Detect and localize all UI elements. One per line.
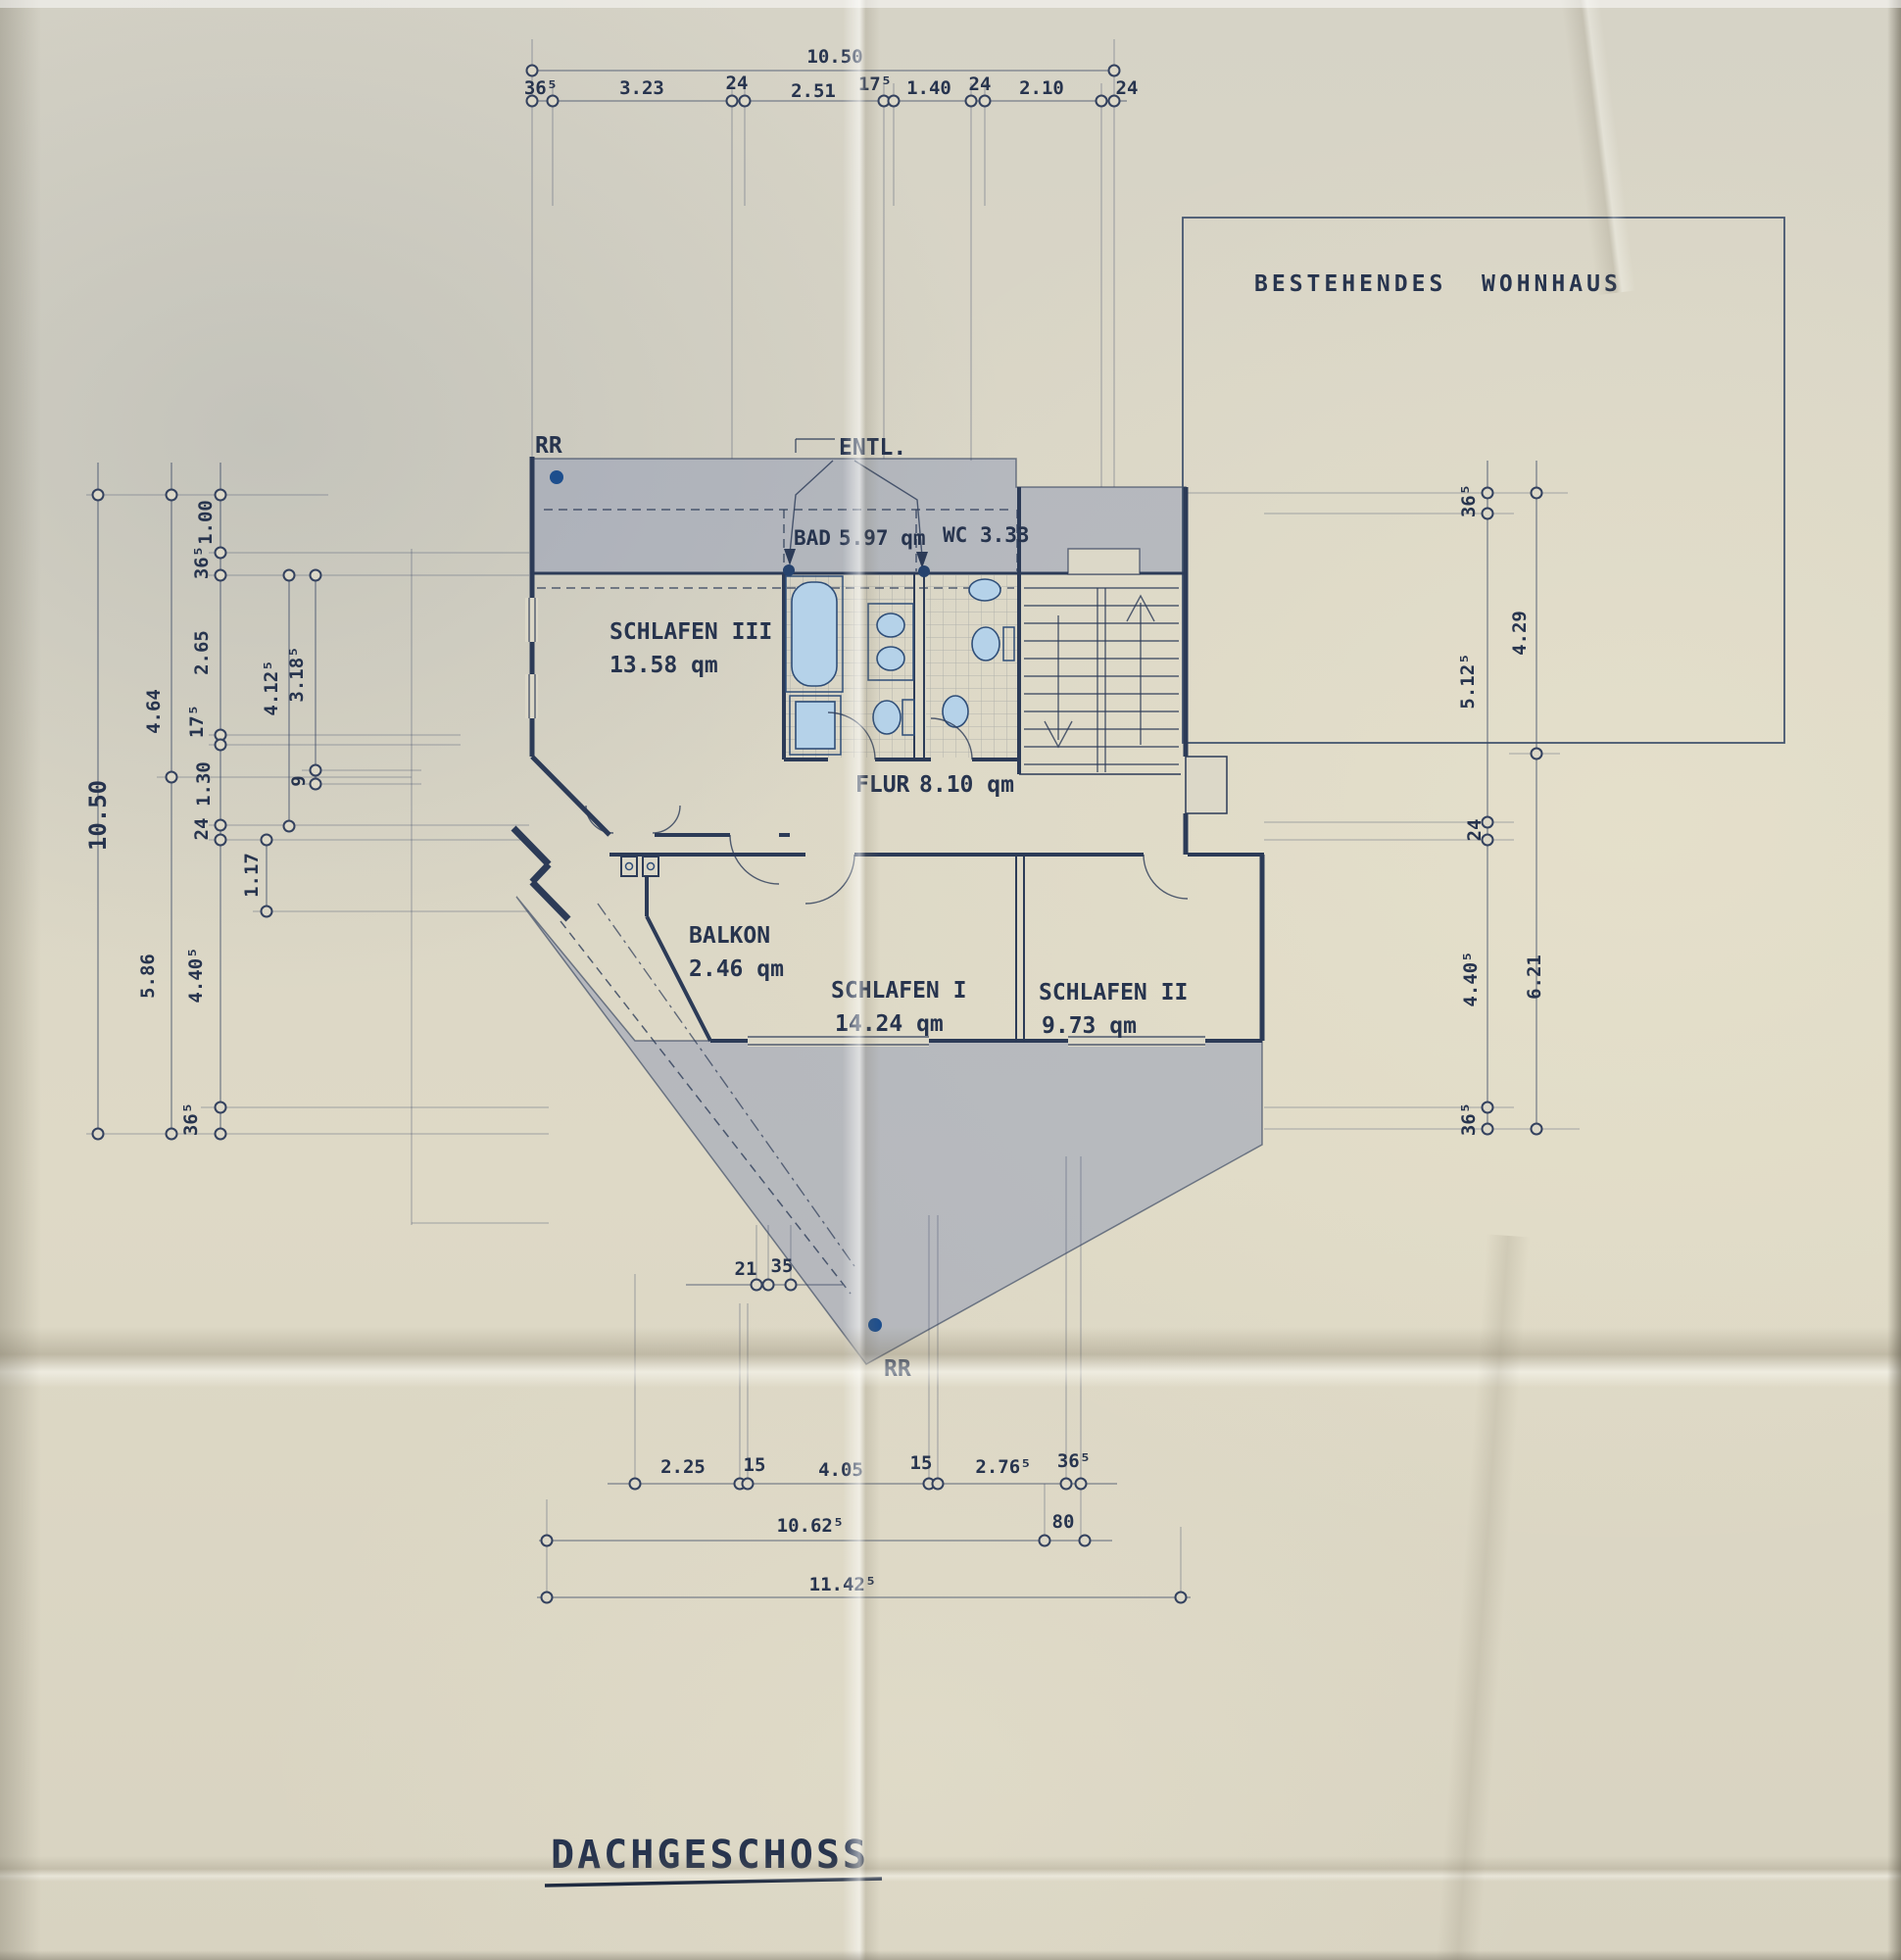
toilet-icon [873, 701, 901, 734]
dim: 36⁵ [524, 77, 558, 99]
washbasin-icon [877, 613, 904, 637]
staircase [1024, 549, 1179, 772]
dim: 24 [191, 818, 213, 841]
dim: 36⁵ [191, 546, 213, 579]
dim: 36⁵ [1458, 1102, 1480, 1136]
room-label-balkon: BALKON [689, 923, 770, 949]
room-label-flur: FLUR [855, 772, 910, 798]
dim: 2.10 [1019, 77, 1064, 99]
dim: 1.40 [906, 77, 951, 99]
dim: 3.18⁵ [286, 646, 308, 702]
dim: 36⁵ [1458, 484, 1480, 517]
room-area-bad: 5.97 qm [839, 526, 926, 550]
room-label-schlafen2: SCHLAFEN II [1039, 980, 1188, 1005]
dim: 4.05 [818, 1459, 863, 1481]
dim-top-total: 10.50 [806, 46, 862, 68]
rainpipe-dot-bottom [868, 1318, 882, 1332]
dim: 4.40⁵ [1460, 951, 1482, 1006]
room-area-schlafen3: 13.58 qm [609, 653, 718, 678]
dim: 35 [771, 1255, 794, 1277]
dim: 4.40⁵ [185, 947, 207, 1003]
dim: 21 [735, 1258, 757, 1280]
balcony-door-post [621, 857, 637, 876]
dim: 2.25 [660, 1456, 706, 1478]
rainpipe-label-bottom: RR [884, 1356, 911, 1382]
room-area-schlafen1: 14.24 qm [835, 1011, 944, 1037]
dim: 24 [726, 73, 749, 94]
vent-label: ENTL. [839, 435, 906, 461]
dim: 4.64 [143, 689, 165, 734]
dim: 6.21 [1524, 955, 1545, 1000]
dim: 15 [744, 1454, 766, 1476]
balcony-door-post [643, 857, 658, 876]
dim: 1.00 [195, 500, 217, 545]
floorplan-drawing: SCHLAFEN III 13.58 qm BAD 5.97 qm WC 3.3… [0, 0, 1901, 1960]
dim: 9 [288, 775, 310, 786]
dim-bottom-total: 11.42⁵ [809, 1574, 877, 1595]
shower [796, 702, 835, 749]
dim: 4.29 [1509, 611, 1531, 656]
dim: 4.12⁵ [261, 660, 282, 715]
room-label-schlafen3: SCHLAFEN III [609, 619, 772, 645]
room-label-bad: BAD [794, 526, 831, 550]
dim: 24 [1464, 819, 1486, 842]
drawing-title: DACHGESCHOSS [551, 1833, 869, 1878]
dim: 1.30 [193, 761, 215, 807]
dim: 80 [1052, 1511, 1075, 1533]
rainpipe-label-top: RR [535, 433, 562, 459]
dim: 17⁵ [858, 73, 892, 95]
room-area-wc: 3.33 [980, 523, 1030, 547]
dim: 24 [969, 73, 992, 95]
vent-pipe-dot [918, 565, 930, 577]
stair-down-arrow [1045, 615, 1072, 747]
dim: 24 [1116, 77, 1139, 99]
stair-up-arrow [1127, 596, 1154, 745]
washbasin-icon [877, 647, 904, 670]
dim: 5.86 [137, 954, 159, 999]
room-label-wc: WC [943, 523, 967, 547]
dim: 2.51 [791, 80, 836, 102]
rainpipe-dot-top [550, 470, 563, 484]
dim: 3.23 [619, 77, 664, 99]
room-label-schlafen1: SCHLAFEN I [831, 978, 966, 1004]
dim: 5.12⁵ [1457, 653, 1479, 709]
dim: 2.65 [191, 630, 213, 675]
wc-sink-icon [969, 579, 1000, 601]
dim: 2.76⁵ [975, 1456, 1031, 1478]
dim-left-total: 10.50 [84, 780, 112, 851]
bathroom [786, 575, 1017, 758]
vent-pipe-dot [783, 564, 795, 576]
bathtub [792, 582, 837, 686]
dim: 17⁵ [186, 705, 208, 738]
balcony [513, 828, 658, 919]
dim: 15 [910, 1452, 933, 1474]
dim: 36⁵ [180, 1102, 202, 1136]
bidet-icon [943, 696, 968, 727]
dim: 36⁵ [1057, 1450, 1091, 1472]
blueprint-paper: SCHLAFEN III 13.58 qm BAD 5.97 qm WC 3.3… [0, 0, 1901, 1960]
room-area-schlafen2: 9.73 qm [1042, 1013, 1137, 1039]
dim: 10.62⁵ [777, 1515, 845, 1537]
drawing-title-block: DACHGESCHOSS [545, 1833, 882, 1886]
wc-toilet-icon [972, 627, 999, 661]
room-area-flur: 8.10 qm [919, 772, 1014, 798]
existing-house-label: BESTEHENDES WOHNHAUS [1254, 271, 1622, 297]
construction-lines [412, 549, 549, 1225]
room-area-balkon: 2.46 qm [689, 956, 784, 982]
dim: 1.17 [241, 853, 263, 898]
